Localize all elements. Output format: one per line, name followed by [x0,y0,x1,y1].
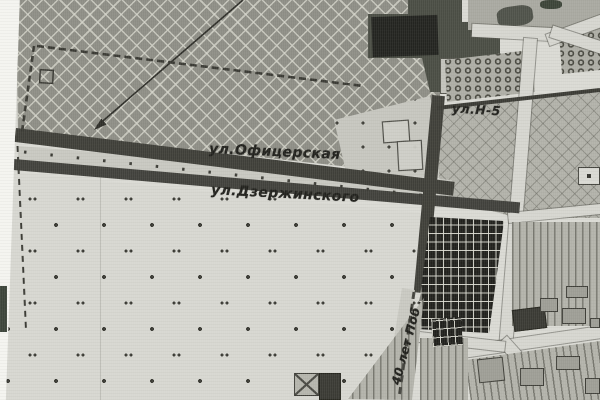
street-label-n5: ул.Н-5 [452,101,502,119]
scanned-city-map: ул.Офицерская ул.Дзержинского ул.Н-5 40 … [0,0,600,400]
scan-margin-sliver [0,286,7,332]
